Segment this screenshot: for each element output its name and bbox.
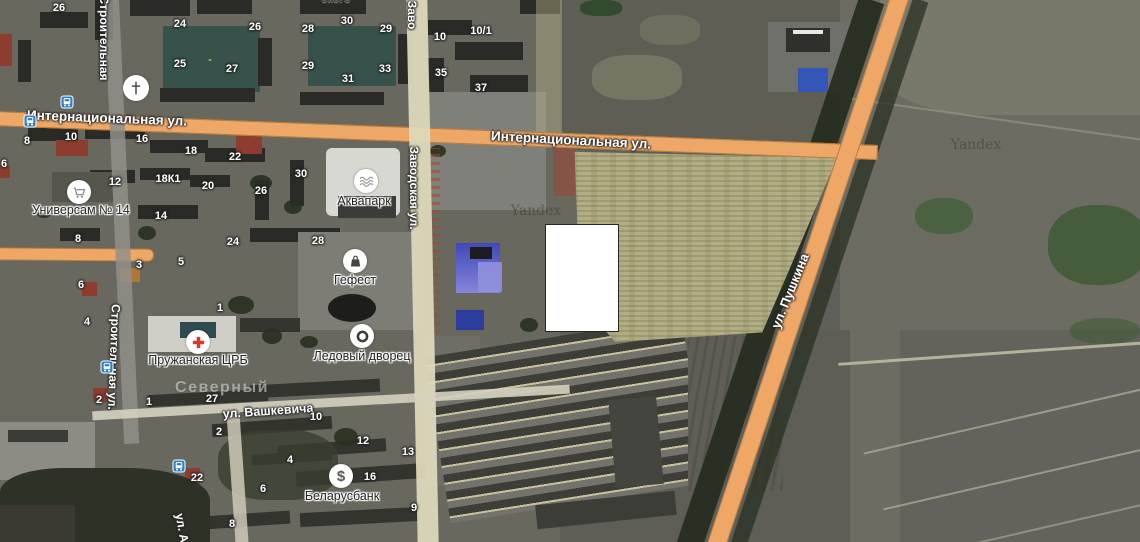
poi-label[interactable]: Пружанская ЦРБ [148,353,247,367]
house-number: 27 [206,393,218,405]
house-number: 26 [53,2,65,14]
poi-label[interactable]: Гефест [334,273,376,287]
poi-label[interactable]: Ледовый дворец [313,349,410,363]
house-number: 4 [287,454,293,466]
bus-stop-icon[interactable] [173,460,186,473]
map-canvas[interactable]: YandexYandexСеверныйИнтернациональная ул… [0,0,1140,542]
house-number: 16 [136,133,148,145]
house-number: 22 [229,151,241,163]
house-number: 20 [202,180,214,192]
house-number: 13 [402,446,414,458]
church-icon[interactable] [123,75,149,101]
house-number: 8 [229,518,235,530]
stadium-icon[interactable] [350,324,374,348]
house-number: 31 [342,73,354,85]
house-number: 24 [174,18,186,30]
yandex-watermark: Yandex [511,203,562,219]
house-number: 37 [475,82,487,94]
street-label: Интернациональная ул. [491,128,652,151]
house-number: 2 [216,426,222,438]
house-number: 4 [84,316,90,328]
street-label: ул. А [173,512,192,542]
house-number: 33 [379,63,391,75]
poi-label[interactable]: Беларусбанк [305,489,379,503]
house-number: 24 [227,236,239,248]
house-number: 10 [310,411,322,423]
street-label: Строительная ул. [105,304,123,410]
street-label: Заво [405,1,419,30]
label-layer: YandexYandexСеверныйИнтернациональная ул… [0,0,1140,542]
waves-icon[interactable] [354,169,378,193]
house-number: 35 [435,67,447,79]
house-number: 5 [178,256,184,268]
district-label: Северный [175,379,269,397]
house-number: 10 [65,131,77,143]
street-label: ского [321,0,350,5]
yandex-watermark: Yandex [951,137,1002,153]
house-number: 2 [96,394,102,406]
poi-label[interactable]: Универсам № 14 [32,203,130,217]
house-number: 16 [364,471,376,483]
house-number: 9 [411,502,417,514]
house-number: 14 [155,210,167,222]
house-number: 18К1 [155,173,180,185]
house-number: 30 [341,15,353,27]
house-number: 22 [191,472,203,484]
street-label: Строительная [97,0,111,81]
house-number: 28 [302,23,314,35]
street-label: Интернациональная ул. [27,107,188,128]
house-number: 6 [78,279,84,291]
street-label: ул. Вашкевича [222,401,314,421]
house-number: 6 [1,158,7,170]
house-number: 10/1 [470,25,491,37]
store-icon[interactable] [343,249,367,273]
house-number: 30 [295,168,307,180]
house-number: 26 [249,21,261,33]
house-number: 27 [226,63,238,75]
bus-stop-icon[interactable] [24,115,37,128]
house-number: 28 [312,235,324,247]
cart-icon[interactable] [67,180,91,204]
house-number: 26 [255,185,267,197]
house-number: 8 [24,135,30,147]
house-number: 12 [357,435,369,447]
house-number: 29 [302,60,314,72]
house-number: 1 [217,302,223,314]
street-label: ул. Пушкина [768,251,812,330]
house-number: 12 [109,176,121,188]
hospital-cross-icon[interactable] [186,330,210,354]
house-number: 8 [75,233,81,245]
dollar-icon[interactable]: $ [329,464,353,488]
house-number: 18 [185,145,197,157]
bus-stop-icon[interactable] [101,361,114,374]
house-number: 1 [146,396,152,408]
poi-label[interactable]: Аквапарк [337,194,390,208]
house-number: 25 [174,58,186,70]
bus-stop-icon[interactable] [61,96,74,109]
street-label: Заводская ул. [407,146,421,229]
dollar-glyph: $ [337,469,345,484]
house-number: 6 [260,483,266,495]
house-number: 29 [380,23,392,35]
house-number: 3 [136,259,142,271]
house-number: 10 [434,31,446,43]
